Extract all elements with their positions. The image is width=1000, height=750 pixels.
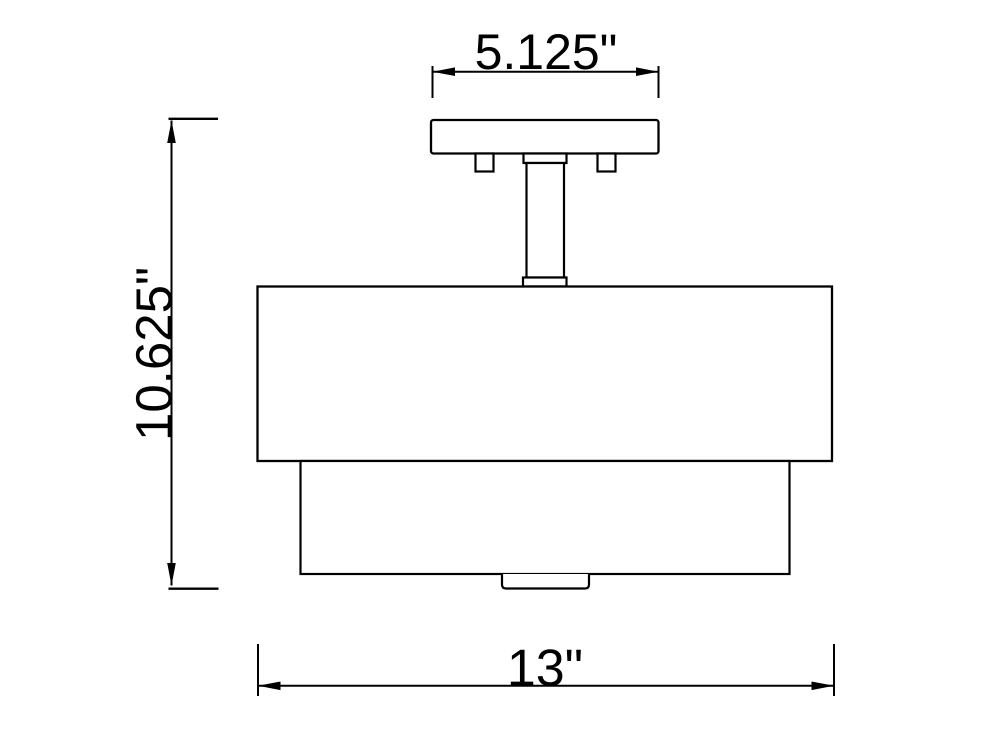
svg-text:10.625": 10.625" <box>126 267 183 441</box>
svg-text:5.125": 5.125" <box>475 24 618 80</box>
svg-text:13": 13" <box>507 640 583 698</box>
